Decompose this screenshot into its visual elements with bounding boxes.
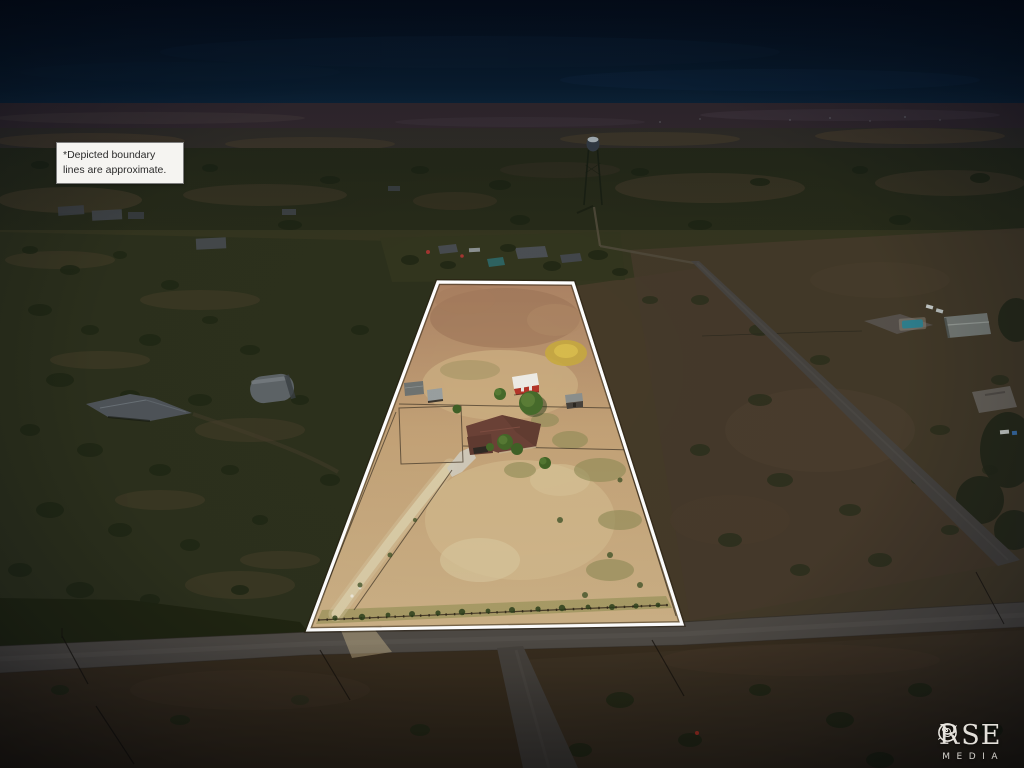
boundary-disclaimer-box: *Depicted boundary lines are approximate…: [56, 142, 184, 184]
watermark-subtitle: MEDIA: [936, 752, 1004, 762]
aerial-photo: .: [0, 0, 1024, 768]
watermark-brand: R SE: [936, 722, 1004, 749]
rose-icon: [937, 722, 958, 743]
disclaimer-line-1: *Depicted boundary: [63, 148, 177, 163]
watermark-brand-right: SE: [961, 722, 1001, 749]
aerial-photo-stage: .: [0, 0, 1024, 768]
disclaimer-line-2: lines are approximate.: [63, 163, 177, 178]
rose-media-watermark: R SE MEDIA: [936, 722, 1004, 762]
